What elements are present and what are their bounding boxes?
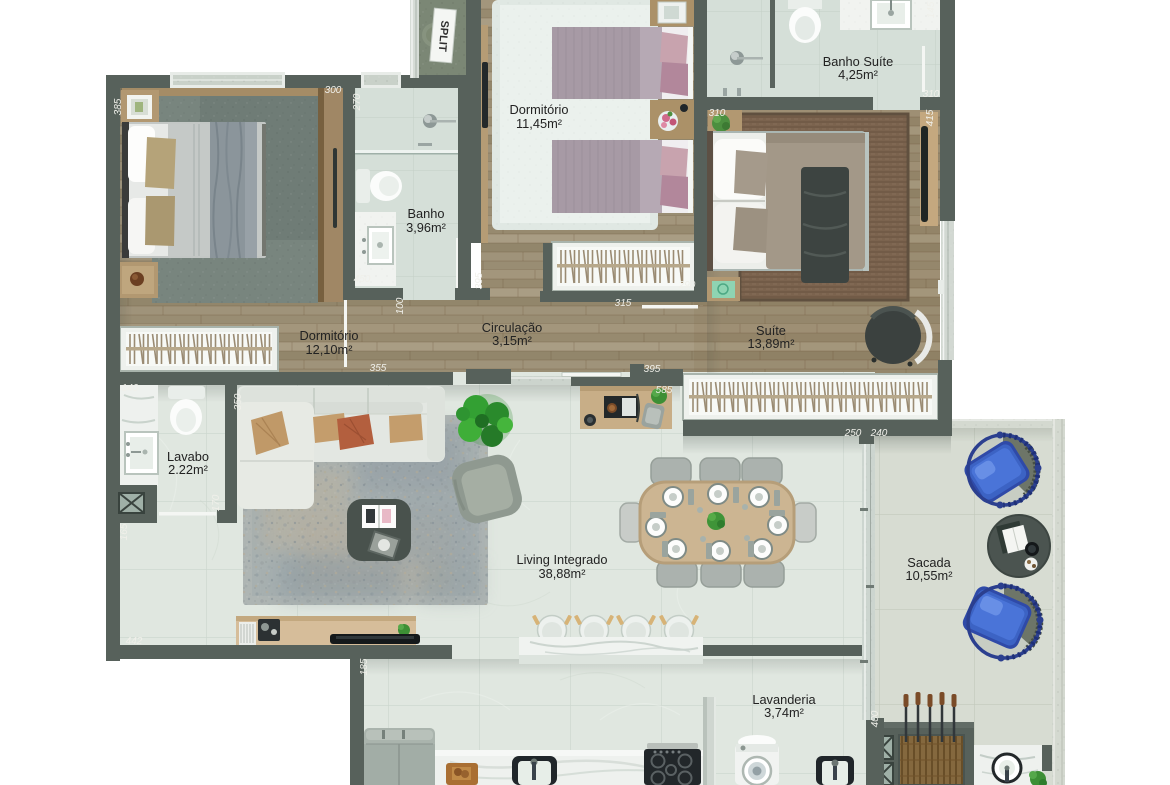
svg-text:Banho: Banho — [407, 206, 444, 221]
svg-text:240: 240 — [870, 428, 888, 439]
svg-text:11,45m²: 11,45m² — [516, 116, 563, 131]
svg-text:385: 385 — [113, 98, 124, 115]
svg-text:170: 170 — [211, 494, 222, 511]
svg-text:100: 100 — [395, 297, 406, 314]
svg-text:3,15m²: 3,15m² — [492, 333, 533, 348]
svg-text:415: 415 — [925, 109, 936, 126]
svg-text:2.22m²: 2.22m² — [168, 462, 209, 477]
svg-text:355: 355 — [370, 363, 387, 374]
svg-text:395: 395 — [644, 364, 661, 375]
svg-text:400: 400 — [870, 710, 881, 727]
svg-text:290: 290 — [678, 280, 696, 291]
svg-text:450: 450 — [354, 274, 371, 285]
svg-text:13,89m²: 13,89m² — [748, 336, 796, 351]
svg-text:310: 310 — [923, 89, 940, 100]
svg-text:Living Integrado: Living Integrado — [516, 552, 607, 567]
svg-text:Dormitório: Dormitório — [509, 102, 568, 117]
svg-text:12,10m²: 12,10m² — [306, 342, 354, 357]
svg-text:38,88m²: 38,88m² — [539, 566, 587, 581]
svg-text:300: 300 — [325, 85, 342, 96]
svg-text:350: 350 — [233, 393, 244, 410]
svg-text:250: 250 — [844, 428, 862, 439]
svg-text:395: 395 — [474, 272, 485, 289]
svg-text:140: 140 — [122, 383, 139, 394]
svg-text:3,96m²: 3,96m² — [406, 220, 447, 235]
svg-text:270: 270 — [352, 93, 363, 111]
svg-text:185: 185 — [359, 658, 370, 675]
svg-text:585: 585 — [656, 385, 673, 396]
svg-text:165: 165 — [119, 523, 130, 540]
svg-text:315: 315 — [615, 298, 632, 309]
svg-text:3,74m²: 3,74m² — [764, 705, 805, 720]
svg-text:Dormitório: Dormitório — [299, 328, 358, 343]
svg-text:145: 145 — [926, 1, 937, 18]
svg-text:310: 310 — [709, 108, 726, 119]
svg-text:442: 442 — [126, 636, 143, 647]
svg-text:4,25m²: 4,25m² — [838, 67, 879, 82]
svg-text:10,55m²: 10,55m² — [906, 568, 954, 583]
